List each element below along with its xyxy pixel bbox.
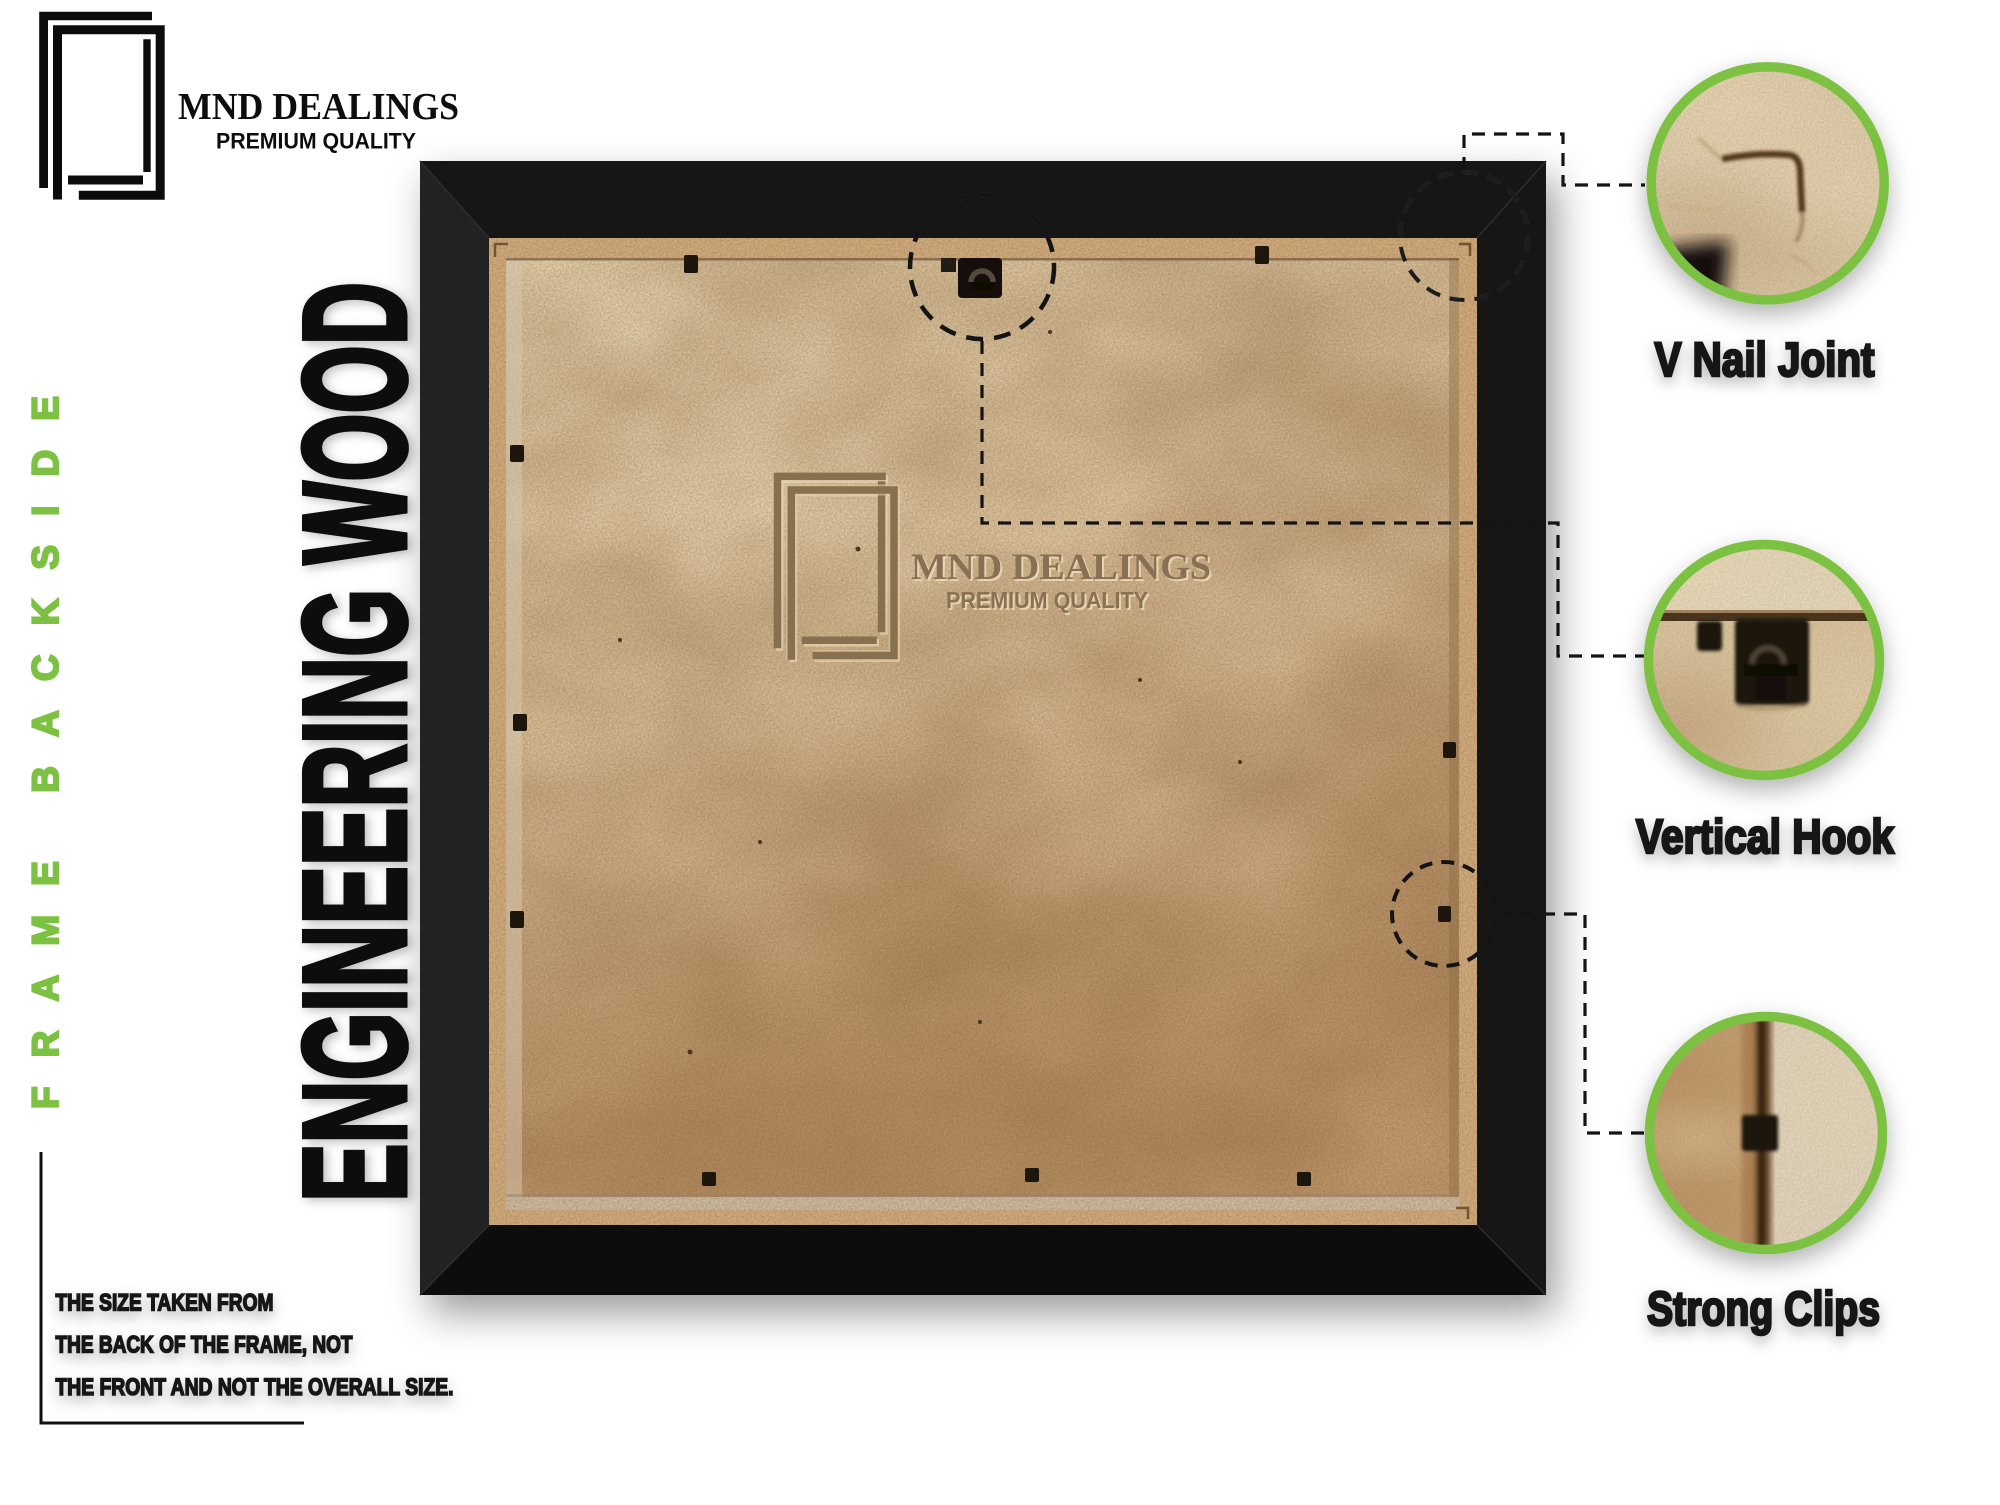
svg-text:Vertical Hook: Vertical Hook xyxy=(1636,811,1894,864)
svg-text:Strong Clips: Strong Clips xyxy=(1647,1283,1880,1336)
svg-text:THE FRONT AND NOT THE OVERALL: THE FRONT AND NOT THE OVERALL SIZE. xyxy=(56,1374,454,1401)
svg-text:MND DEALINGS: MND DEALINGS xyxy=(178,86,459,128)
svg-text:PREMIUM QUALITY: PREMIUM QUALITY xyxy=(216,129,416,154)
svg-text:THE BACK OF THE FRAME, NOT: THE BACK OF THE FRAME, NOT xyxy=(56,1332,353,1359)
svg-text:THE SIZE TAKEN FROM: THE SIZE TAKEN FROM xyxy=(56,1290,274,1317)
svg-text:ENGINEERING WOOD: ENGINEERING WOOD xyxy=(273,282,436,1202)
svg-text:PREMIUM QUALITY: PREMIUM QUALITY xyxy=(946,587,1148,613)
svg-text:MND DEALINGS: MND DEALINGS xyxy=(911,547,1211,588)
svg-text:V Nail Joint: V Nail Joint xyxy=(1655,334,1875,387)
